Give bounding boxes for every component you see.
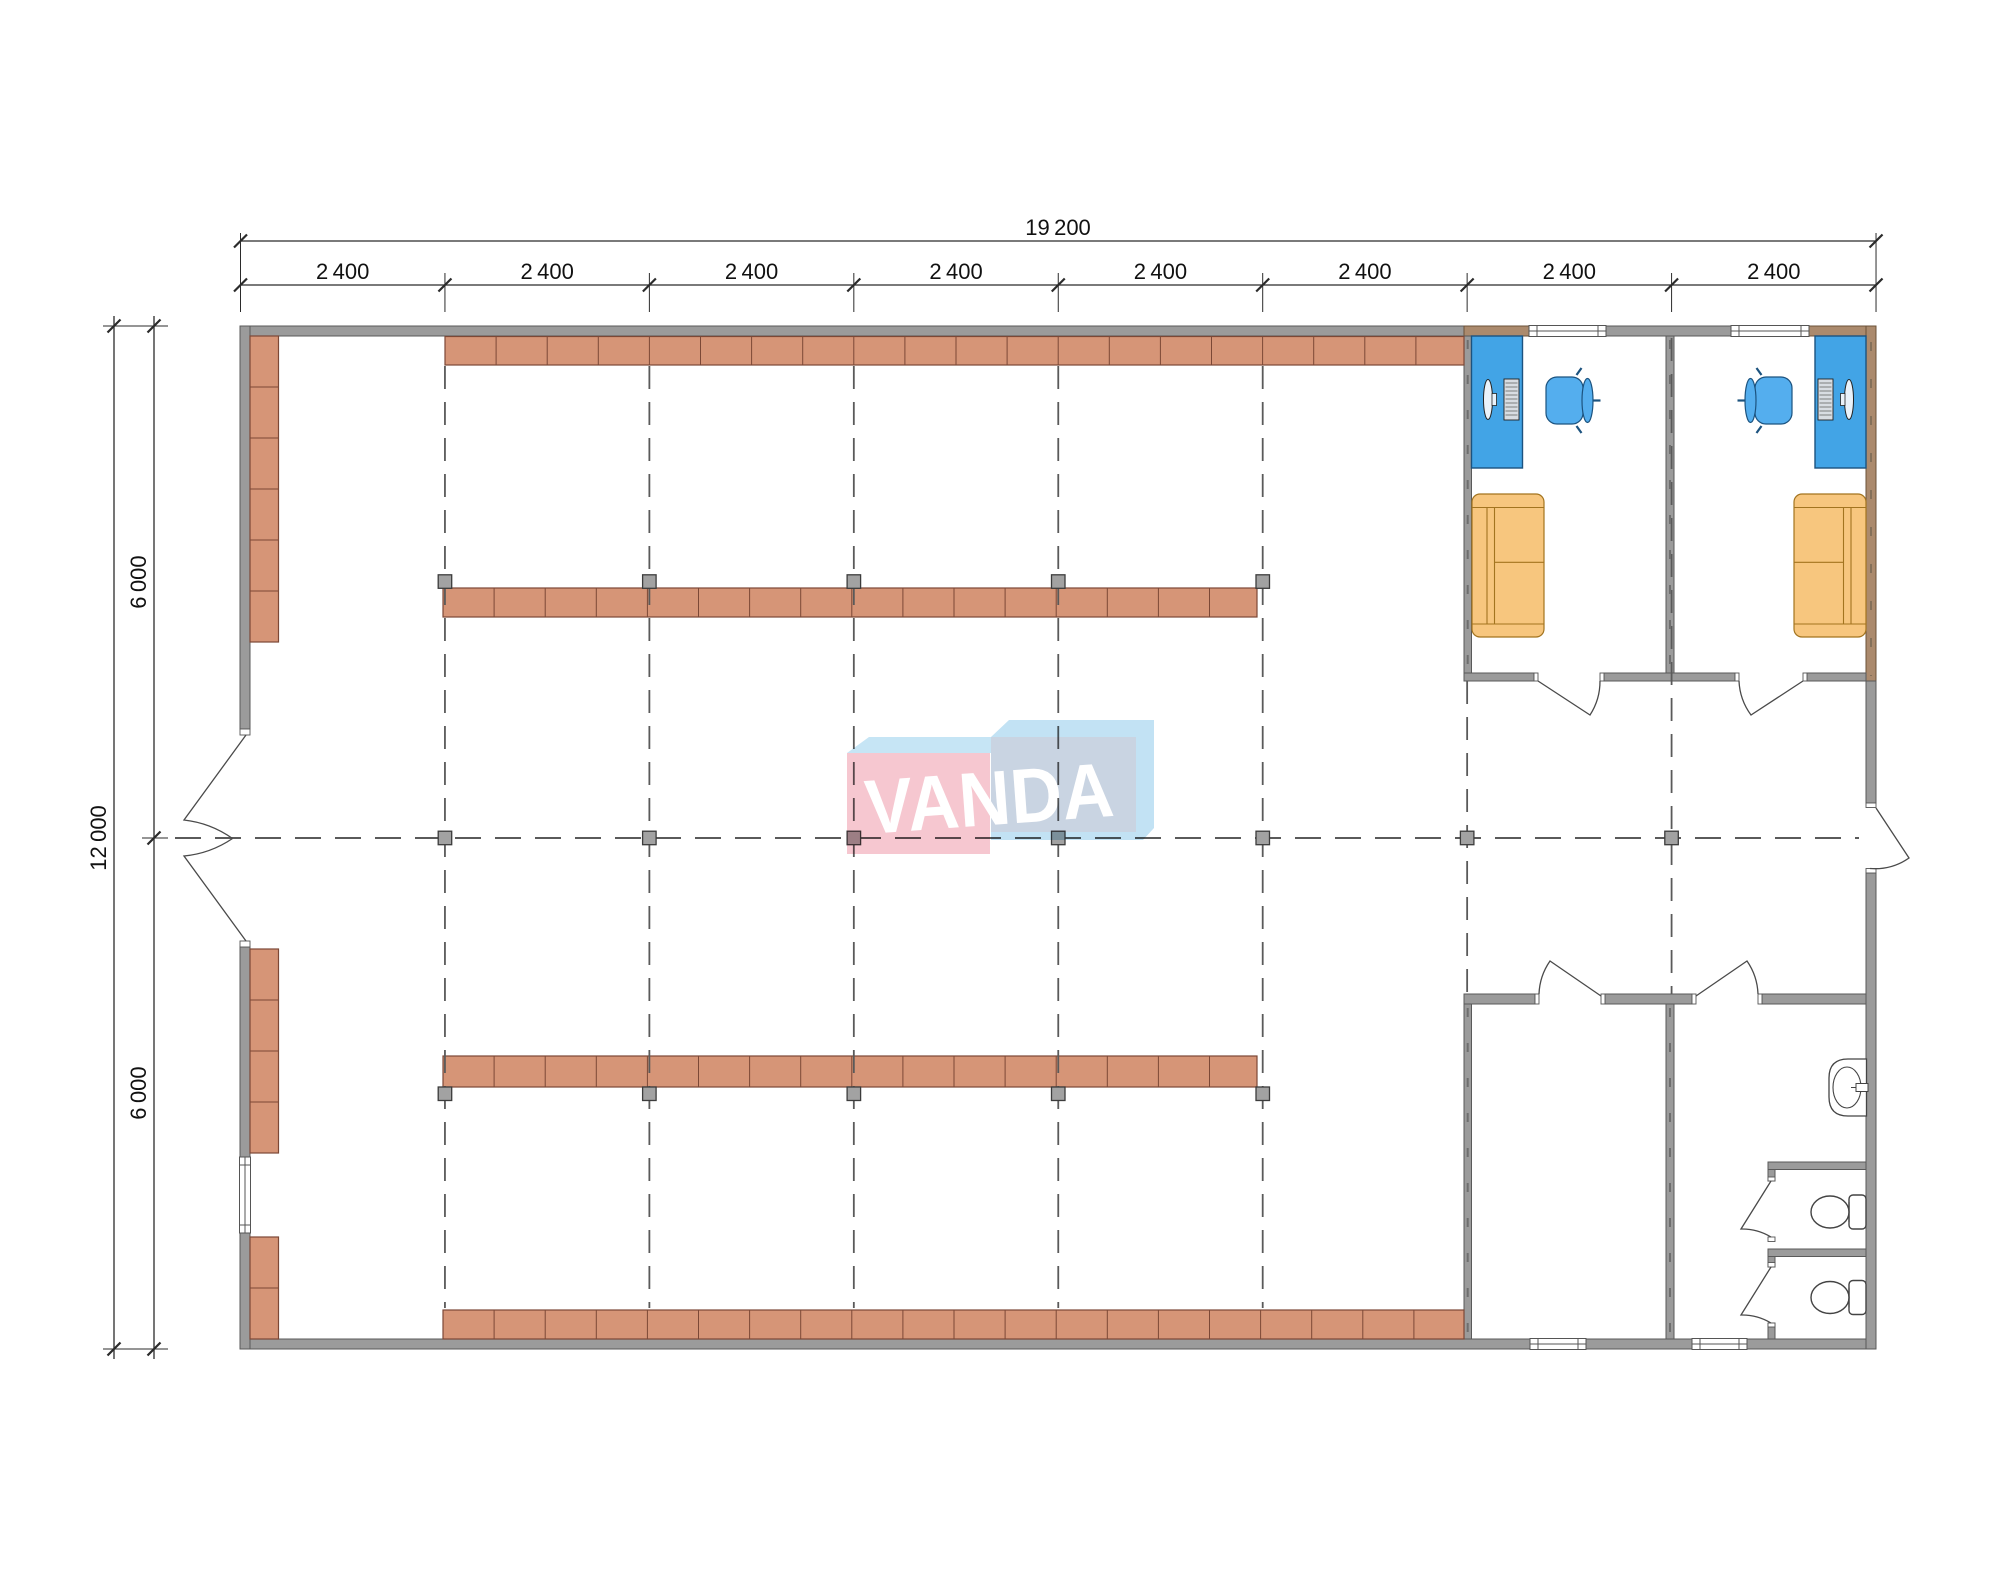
svg-text:2 400: 2 400: [929, 259, 982, 284]
svg-text:19 200: 19 200: [1025, 215, 1091, 240]
svg-text:2 400: 2 400: [1134, 259, 1187, 284]
svg-text:12 000: 12 000: [86, 805, 111, 871]
svg-text:VANDA: VANDA: [862, 747, 1117, 851]
svg-text:2 400: 2 400: [1747, 259, 1800, 284]
svg-text:2 400: 2 400: [1338, 259, 1391, 284]
svg-text:2 400: 2 400: [1543, 259, 1596, 284]
svg-text:6 000: 6 000: [126, 555, 151, 608]
svg-text:2 400: 2 400: [316, 259, 369, 284]
svg-text:6 000: 6 000: [126, 1066, 151, 1119]
svg-text:2 400: 2 400: [725, 259, 778, 284]
svg-text:2 400: 2 400: [520, 259, 573, 284]
